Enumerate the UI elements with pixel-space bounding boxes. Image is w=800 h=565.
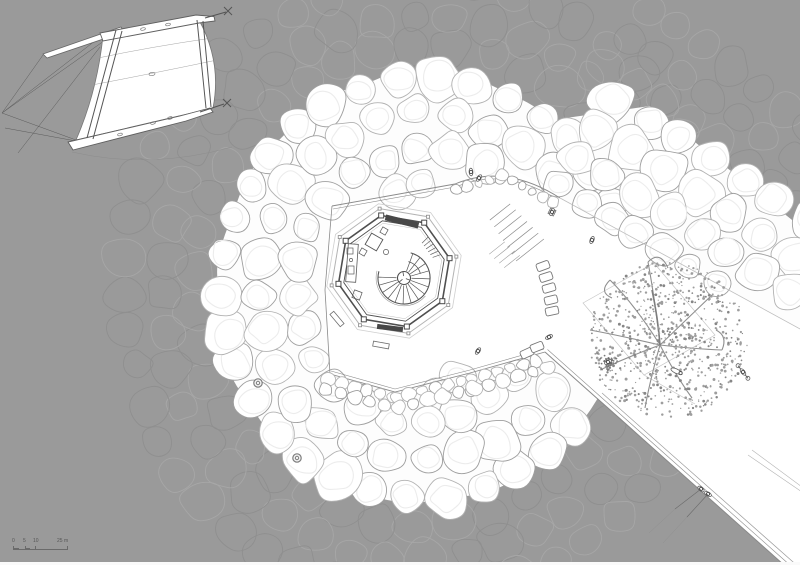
scale-label: 0 [12, 539, 15, 544]
site-plan-drawing: 0 5 10 25 m [0, 0, 800, 565]
scale-bar-line [13, 549, 68, 550]
scale-label: 5 [23, 539, 26, 544]
scale-tick [35, 546, 36, 550]
scale-bar: 0 5 10 25 m [13, 543, 69, 553]
scale-segment [25, 548, 30, 550]
scale-segment [13, 548, 19, 550]
scale-label: 10 [33, 539, 39, 544]
mooring-ring [293, 454, 301, 462]
site-plan-svg [0, 0, 800, 565]
scale-end-label: 25 m [57, 539, 68, 544]
scale-tick [67, 546, 68, 550]
mooring-ring [254, 379, 262, 387]
